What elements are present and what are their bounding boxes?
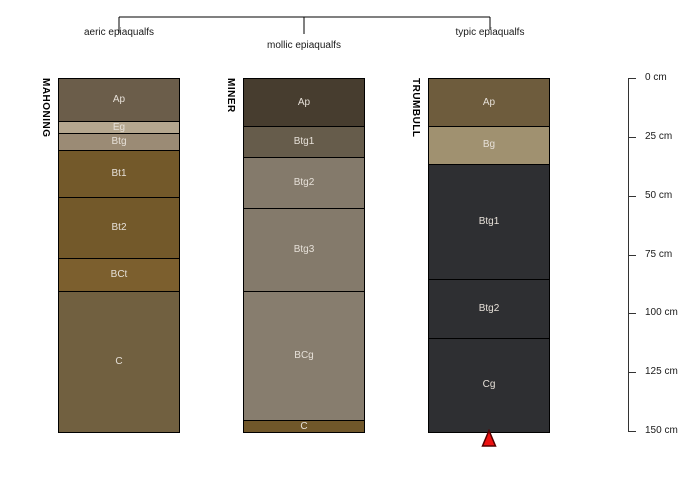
horizon-label: Btg3 [294, 245, 315, 255]
horizon-eg: Eg [59, 121, 179, 133]
horizon-btg: Btg [59, 133, 179, 149]
horizon-label: Btg1 [479, 217, 500, 227]
profile-name-trumbull: TRUMBULL [410, 78, 421, 138]
horizon-label: Ap [483, 98, 495, 108]
profile-column-trumbull: ApBgBtg1Btg2Cg [428, 78, 550, 433]
horizon-bg: Bg [429, 126, 549, 164]
horizon-label: Btg [111, 137, 126, 147]
horizon-c: C [244, 420, 364, 432]
depth-tick-label: 0 cm [645, 72, 667, 84]
profile-column-mahoning: ApEgBtgBt1Bt2BCtC [58, 78, 180, 433]
depth-tick [628, 137, 636, 138]
horizon-label: Eg [113, 123, 125, 133]
profile-name-mahoning: MAHONING [40, 78, 51, 138]
profile-name-miner: MINER [225, 78, 236, 113]
profile-column-miner: ApBtg1Btg2Btg3BCgC [243, 78, 365, 433]
horizon-label: Bg [483, 140, 495, 150]
horizon-label: Ap [113, 95, 125, 105]
horizon-c: C [59, 291, 179, 432]
depth-tick [628, 431, 636, 432]
horizon-label: Btg2 [294, 178, 315, 188]
depth-tick [628, 372, 636, 373]
horizon-bct: BCt [59, 258, 179, 291]
horizon-label: Ap [298, 98, 310, 108]
horizon-label: BCt [111, 270, 128, 280]
horizon-label: Cg [483, 380, 496, 390]
horizon-btg1: Btg1 [429, 164, 549, 279]
horizon-btg2: Btg2 [244, 157, 364, 209]
depth-tick [628, 255, 636, 256]
horizon-bcg: BCg [244, 291, 364, 420]
horizon-bt2: Bt2 [59, 197, 179, 258]
depth-tick-label: 75 cm [645, 249, 672, 261]
horizon-label: C [115, 357, 122, 367]
horizon-cg: Cg [429, 338, 549, 432]
profile-marker-triangle-icon [481, 429, 497, 448]
horizon-label: BCg [294, 351, 313, 361]
depth-tick [628, 313, 636, 314]
horizon-label: Bt1 [111, 169, 126, 179]
horizon-label: Btg1 [294, 137, 315, 147]
horizon-bt1: Bt1 [59, 150, 179, 197]
depth-tick-label: 150 cm [645, 425, 678, 437]
depth-tick [628, 196, 636, 197]
horizon-btg3: Btg3 [244, 208, 364, 290]
classification-label-typic: typic epiaqualfs [456, 27, 525, 38]
soil-profile-figure: aeric epiaqualfs mollic epiaqualfs typic… [0, 0, 700, 500]
depth-tick-label: 25 cm [645, 131, 672, 143]
classification-label-mollic: mollic epiaqualfs [267, 40, 341, 51]
horizon-ap: Ap [244, 79, 364, 126]
horizon-label: Bt2 [111, 223, 126, 233]
horizon-ap: Ap [429, 79, 549, 126]
classification-label-aeric: aeric epiaqualfs [84, 27, 154, 38]
depth-tick [628, 78, 636, 79]
depth-tick-label: 50 cm [645, 190, 672, 202]
depth-tick-label: 100 cm [645, 307, 678, 319]
horizon-ap: Ap [59, 79, 179, 121]
depth-tick-label: 125 cm [645, 366, 678, 378]
horizon-label: C [300, 422, 307, 432]
horizon-label: Btg2 [479, 304, 500, 314]
horizon-btg2: Btg2 [429, 279, 549, 338]
horizon-btg1: Btg1 [244, 126, 364, 157]
